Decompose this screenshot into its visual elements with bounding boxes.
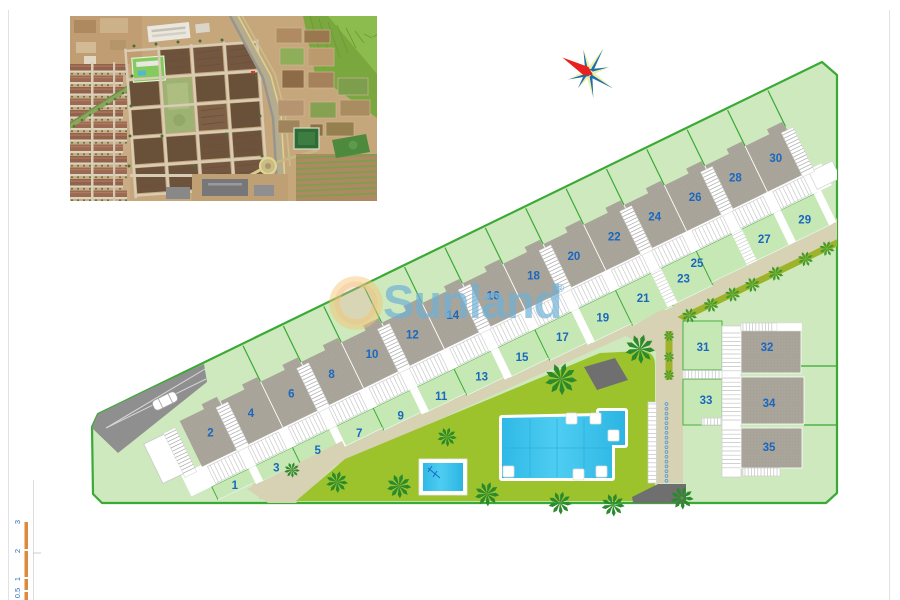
svg-text:20: 20 [568, 251, 581, 263]
svg-text:30: 30 [769, 153, 782, 165]
svg-text:21: 21 [637, 293, 650, 305]
svg-text:8: 8 [328, 369, 335, 381]
svg-text:Sunland: Sunland [383, 275, 561, 328]
svg-text:28: 28 [729, 173, 742, 185]
svg-text:4: 4 [248, 408, 255, 420]
svg-text:9: 9 [397, 410, 403, 422]
svg-text:19: 19 [596, 313, 609, 325]
svg-text:23: 23 [677, 273, 690, 285]
svg-text:5: 5 [314, 445, 321, 457]
svg-text:1: 1 [232, 480, 239, 492]
svg-text:26: 26 [689, 192, 702, 204]
svg-text:22: 22 [608, 231, 621, 243]
svg-text:32: 32 [761, 342, 774, 354]
svg-text:3: 3 [13, 520, 22, 524]
svg-text:0.5: 0.5 [13, 588, 22, 598]
svg-text:27: 27 [758, 234, 771, 246]
svg-text:10: 10 [366, 349, 379, 361]
svg-text:34: 34 [763, 398, 776, 410]
svg-text:7: 7 [356, 428, 362, 440]
svg-text:31: 31 [697, 342, 710, 354]
svg-text:33: 33 [700, 395, 713, 407]
svg-text:15: 15 [516, 352, 529, 364]
svg-text:17: 17 [556, 332, 569, 344]
svg-text:3: 3 [273, 463, 279, 475]
svg-text:12: 12 [406, 330, 419, 342]
svg-text:29: 29 [798, 214, 811, 226]
svg-text:11: 11 [435, 391, 448, 403]
svg-text:1: 1 [13, 577, 22, 581]
svg-text:2: 2 [207, 428, 213, 440]
svg-text:2: 2 [13, 549, 22, 553]
svg-text:25: 25 [691, 258, 704, 270]
svg-text:24: 24 [648, 212, 661, 224]
svg-text:13: 13 [475, 372, 488, 384]
svg-text:6: 6 [288, 388, 294, 400]
svg-text:35: 35 [763, 442, 776, 454]
svg-text:®: ® [556, 283, 564, 295]
